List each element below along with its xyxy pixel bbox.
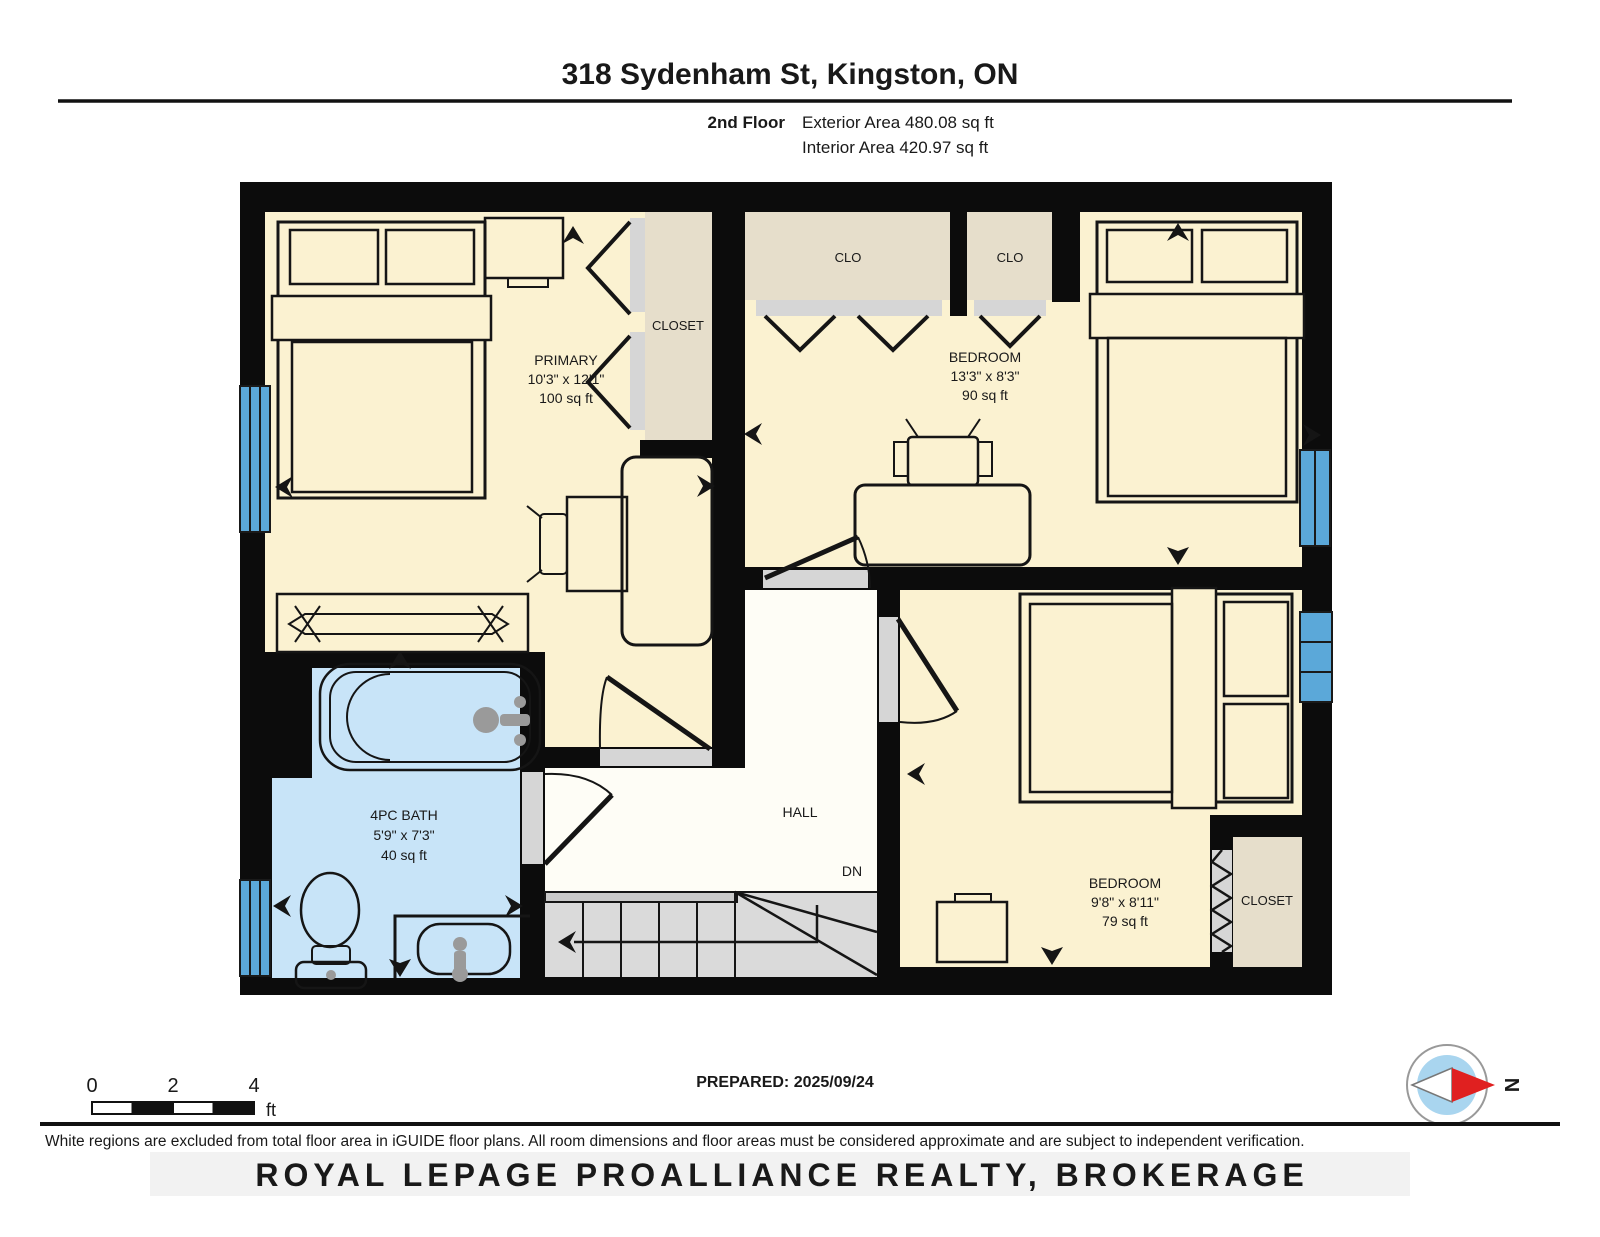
clo-left-door xyxy=(756,300,942,316)
wall-between-clo xyxy=(950,182,967,316)
svg-text:PRIMARY: PRIMARY xyxy=(534,352,598,368)
tub-faucet xyxy=(500,714,530,726)
bottom-closet-label: CLOSET xyxy=(1241,893,1293,908)
svg-text:BEDROOM: BEDROOM xyxy=(949,349,1021,365)
scale-tick-0: 0 xyxy=(86,1075,97,1097)
footer: White regions are excluded from total fl… xyxy=(40,1124,1560,1196)
primary-door-threshold xyxy=(600,749,712,766)
prepared-date: PREPARED: 2025/09/24 xyxy=(696,1074,874,1091)
stair-nosing xyxy=(545,892,737,902)
wall-right-of-clo xyxy=(1052,182,1080,302)
stairs-down-label: DN xyxy=(842,863,862,879)
svg-text:90 sq ft: 90 sq ft xyxy=(962,387,1008,403)
primary-closet-door-top xyxy=(630,218,645,312)
wall-below-primary-closet xyxy=(640,440,712,458)
svg-text:100 sq ft: 100 sq ft xyxy=(539,390,593,406)
compass: N xyxy=(1407,1045,1522,1125)
primary-closet-label: CLOSET xyxy=(652,318,704,333)
svg-text:9'8" x 8'11": 9'8" x 8'11" xyxy=(1091,894,1159,910)
hall-fill xyxy=(545,768,877,892)
svg-text:BEDROOM: BEDROOM xyxy=(1089,875,1161,891)
floorplan-page: 318 Sydenham St, Kingston, ON 2nd Floor … xyxy=(0,0,1600,1237)
svg-text:13'3" x 8'3": 13'3" x 8'3" xyxy=(951,368,1020,384)
scale-unit: ft xyxy=(266,1100,276,1120)
disclaimer-text: White regions are excluded from total fl… xyxy=(45,1133,1305,1150)
hall-label: HALL xyxy=(782,804,817,820)
hall-landing-fill xyxy=(745,590,877,768)
window-left-bath xyxy=(240,880,270,976)
bath-door-threshold xyxy=(522,772,543,864)
brokerage-watermark: ROYAL LEPAGE PROALLIANCE REALTY, BROKERA… xyxy=(255,1157,1308,1193)
bedroom-bottom-door-threshold xyxy=(879,617,898,722)
clo-left-label: CLO xyxy=(835,250,862,265)
exterior-area: Exterior Area 480.08 sq ft xyxy=(802,113,994,132)
window-right-lower xyxy=(1300,612,1332,702)
floorplan: PRIMARY 10'3" x 12'1" 100 sq ft BEDROOM … xyxy=(240,182,1332,995)
window-right-upper xyxy=(1300,450,1330,546)
compass-north-label: N xyxy=(1500,1078,1522,1092)
scale-tick-4: 4 xyxy=(248,1075,259,1097)
svg-text:4PC BATH: 4PC BATH xyxy=(370,807,437,823)
clo-right-label: CLO xyxy=(997,250,1024,265)
stairs-fill xyxy=(545,892,877,977)
primary-closet-door-bottom xyxy=(630,332,645,430)
sink-faucet xyxy=(453,937,467,951)
interior-area: Interior Area 420.97 sq ft xyxy=(802,138,988,157)
svg-text:10'3" x 12'1": 10'3" x 12'1" xyxy=(528,371,605,387)
header: 318 Sydenham St, Kingston, ON 2nd Floor … xyxy=(58,58,1512,157)
clo-right-door xyxy=(974,300,1046,316)
floor-label: 2nd Floor xyxy=(708,113,786,132)
svg-text:79 sq ft: 79 sq ft xyxy=(1102,913,1148,929)
page-title: 318 Sydenham St, Kingston, ON xyxy=(562,58,1019,91)
svg-text:5'9" x 7'3": 5'9" x 7'3" xyxy=(373,827,434,843)
wall-above-bottom-closet xyxy=(1210,815,1302,837)
tub-drain xyxy=(473,707,499,733)
svg-text:40 sq ft: 40 sq ft xyxy=(381,847,427,863)
scale-tick-2: 2 xyxy=(167,1075,178,1097)
scale-bar: 0 2 4 ft xyxy=(86,1075,276,1120)
window-left-upper xyxy=(240,386,270,532)
